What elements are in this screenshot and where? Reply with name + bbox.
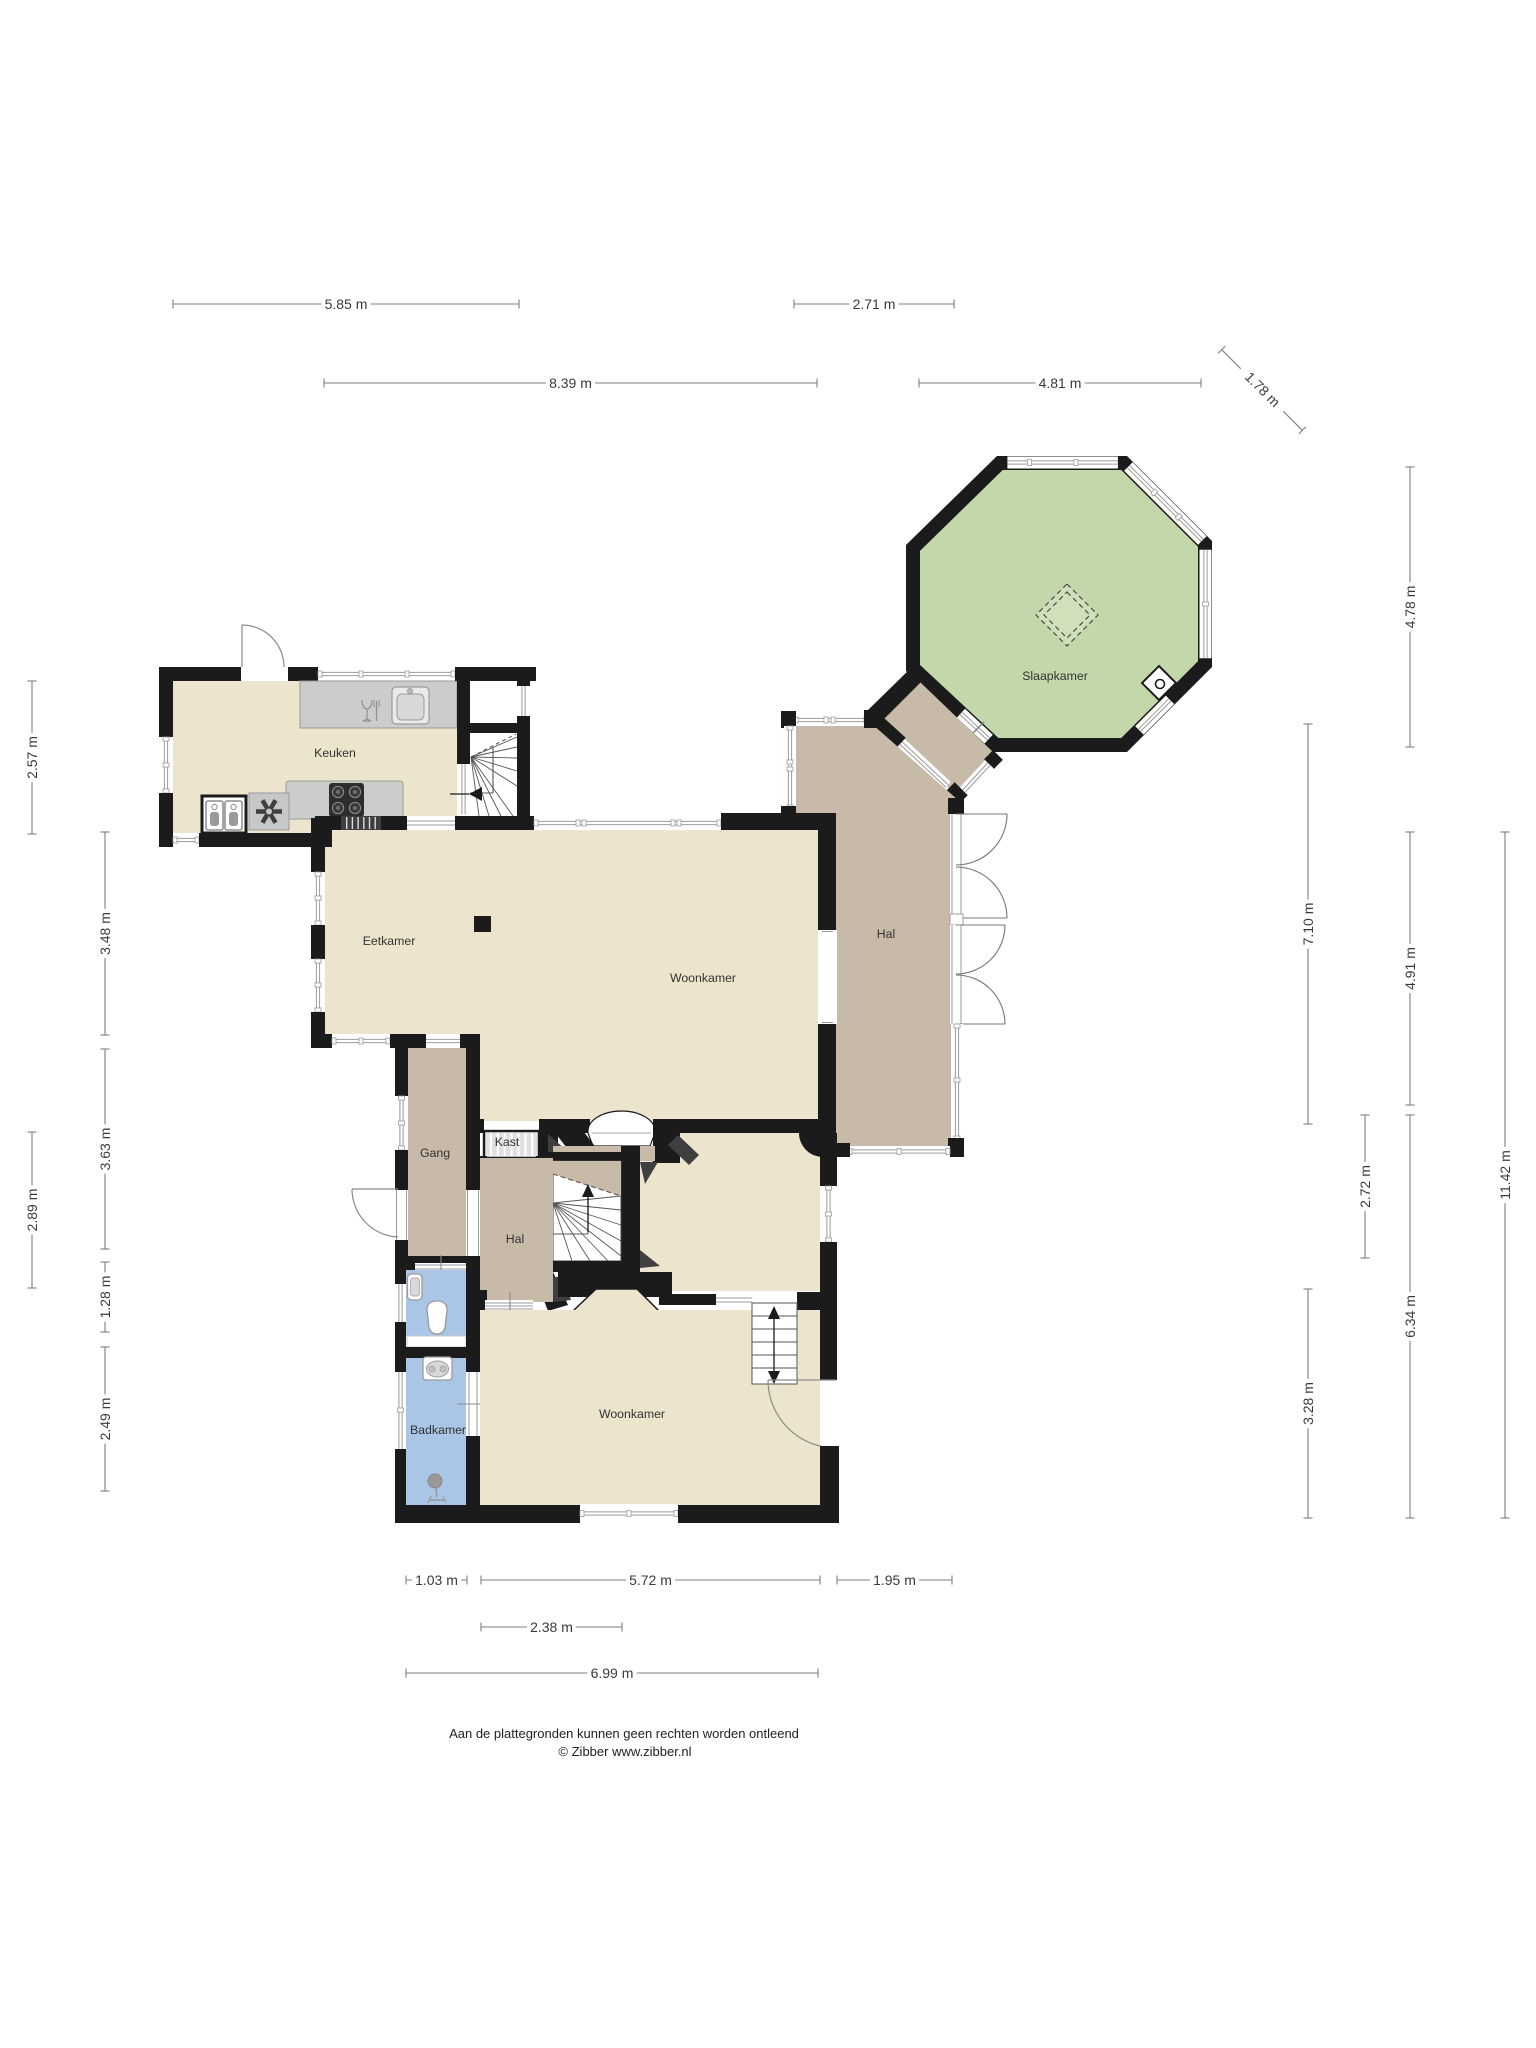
svg-text:Keuken: Keuken	[314, 746, 356, 760]
svg-text:5.72 m: 5.72 m	[629, 1572, 672, 1588]
svg-text:2.89 m: 2.89 m	[24, 1189, 40, 1232]
svg-text:Woonkamer: Woonkamer	[599, 1407, 665, 1421]
svg-text:2.71 m: 2.71 m	[853, 296, 896, 312]
svg-text:Hal: Hal	[877, 927, 895, 941]
svg-text:Woonkamer: Woonkamer	[670, 971, 736, 985]
svg-text:1.95 m: 1.95 m	[873, 1572, 916, 1588]
svg-text:2.49 m: 2.49 m	[97, 1398, 113, 1441]
svg-text:Badkamer: Badkamer	[410, 1423, 466, 1437]
svg-text:1.28 m: 1.28 m	[97, 1276, 113, 1319]
svg-text:Slaapkamer: Slaapkamer	[1022, 669, 1088, 683]
svg-text:4.78 m: 4.78 m	[1402, 586, 1418, 629]
svg-text:1.03 m: 1.03 m	[415, 1572, 458, 1588]
svg-text:Aan de plattegronden kunnen ge: Aan de plattegronden kunnen geen rechten…	[449, 1726, 799, 1741]
svg-text:5.85 m: 5.85 m	[325, 296, 368, 312]
svg-text:Hal: Hal	[506, 1232, 524, 1246]
svg-text:8.39 m: 8.39 m	[549, 375, 592, 391]
svg-text:6.99 m: 6.99 m	[591, 1665, 634, 1681]
svg-text:Gang: Gang	[420, 1146, 450, 1160]
svg-text:3.63 m: 3.63 m	[97, 1128, 113, 1171]
svg-text:2.57 m: 2.57 m	[24, 736, 40, 779]
svg-text:© Zibber www.zibber.nl: © Zibber www.zibber.nl	[558, 1744, 691, 1759]
svg-text:7.10 m: 7.10 m	[1300, 903, 1316, 946]
svg-text:3.28 m: 3.28 m	[1300, 1382, 1316, 1425]
svg-text:2.38 m: 2.38 m	[530, 1619, 573, 1635]
svg-text:11.42 m: 11.42 m	[1497, 1150, 1513, 1200]
svg-text:Eetkamer: Eetkamer	[363, 934, 416, 948]
svg-text:3.48 m: 3.48 m	[97, 912, 113, 955]
svg-text:6.34 m: 6.34 m	[1402, 1295, 1418, 1338]
svg-text:4.81 m: 4.81 m	[1039, 375, 1082, 391]
svg-text:Kast: Kast	[495, 1135, 520, 1149]
svg-text:4.91 m: 4.91 m	[1402, 947, 1418, 990]
svg-text:2.72 m: 2.72 m	[1357, 1165, 1373, 1208]
